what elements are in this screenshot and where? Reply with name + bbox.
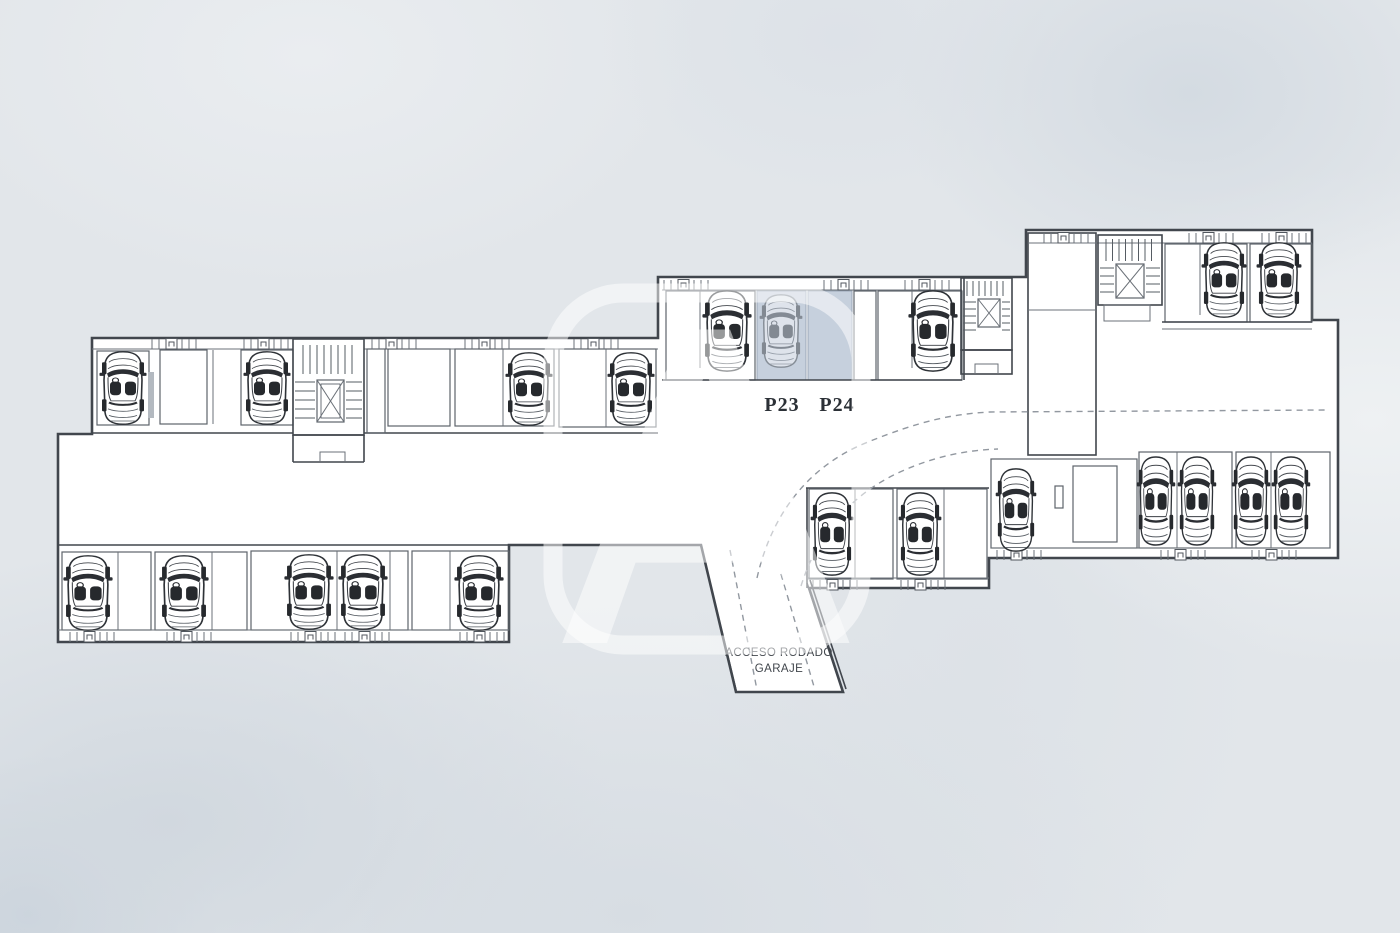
parking-car (1202, 243, 1247, 317)
floor-plan: ACCESO RODADO GARAJE P23 P24 A (0, 0, 1400, 933)
parking-car (1272, 457, 1310, 545)
watermark-letter: A (559, 245, 855, 745)
parking-car (899, 493, 942, 575)
parking-car (159, 556, 208, 630)
parking-car (100, 352, 147, 424)
parking-car (908, 291, 957, 371)
parking-car (1178, 457, 1216, 545)
parking-car (1232, 457, 1270, 545)
parking-car (1257, 243, 1302, 317)
parking-car (1137, 457, 1175, 545)
garage-floor-plan-screenshot: ACCESO RODADO GARAJE P23 P24 A (0, 0, 1400, 933)
parking-car (454, 556, 503, 630)
parking-car (338, 555, 387, 629)
parking-car (244, 352, 291, 424)
parking-car (284, 555, 333, 629)
parking-car (63, 556, 112, 630)
parking-car (996, 469, 1037, 551)
watermark: A (553, 245, 861, 745)
